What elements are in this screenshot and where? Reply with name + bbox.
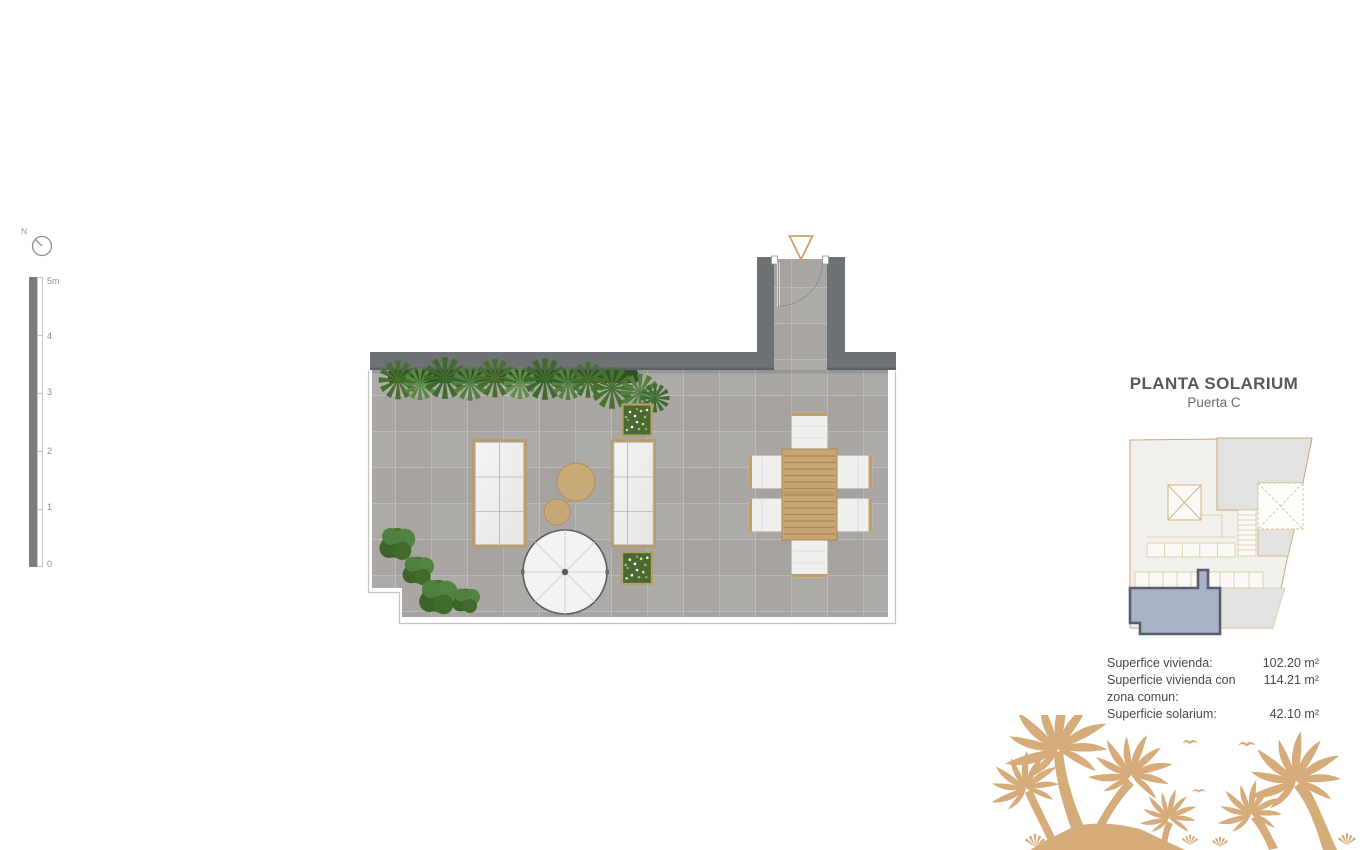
planter-top: [623, 405, 652, 436]
scale-label-2: 2: [47, 446, 52, 456]
scale-bar-rule: [29, 277, 37, 567]
sofa-center: [611, 439, 656, 548]
sofa-left: [472, 439, 527, 548]
compass-north-label: N: [21, 226, 27, 236]
page-title: PLANTA SOLARIUM: [1100, 374, 1328, 394]
compass: N: [18, 222, 58, 262]
area-label: Superficie vivienda con zona comun:: [1107, 672, 1253, 706]
scale-label-5m: 5m: [47, 276, 60, 286]
area-value: 114.21 m²: [1253, 672, 1319, 689]
pouf-large: [557, 463, 595, 501]
palm-cluster-right: [1212, 725, 1356, 850]
area-row: Superfice vivienda: 102.20 m²: [1107, 655, 1319, 672]
page-subtitle: Puerta C: [1100, 395, 1328, 410]
scale-label-0: 0: [47, 559, 52, 569]
dining-table: [782, 449, 837, 540]
entry-arrow-icon: [790, 236, 813, 260]
palm-cluster-left: [985, 715, 1198, 850]
scale-label-1: 1: [47, 502, 52, 512]
scale-label-4: 4: [47, 331, 52, 341]
compass-icon: [28, 231, 56, 259]
plan-sheet: N 5m 4 3 2 1 0: [0, 0, 1360, 850]
key-plan: [1125, 430, 1325, 640]
planter-bottom: [622, 552, 652, 584]
scale-bar: 5m 4 3 2 1 0: [29, 277, 89, 567]
palm-decoration: [985, 715, 1360, 850]
area-label: Superfice vivienda:: [1107, 655, 1253, 672]
parasol: [521, 530, 609, 614]
area-table: Superfice vivienda: 102.20 m² Superficie…: [1107, 655, 1319, 723]
scale-bar-strip: [37, 277, 43, 567]
seagulls: [1182, 740, 1256, 793]
floor-plan: [360, 225, 905, 645]
area-value: 102.20 m²: [1253, 655, 1319, 672]
scale-label-3: 3: [47, 387, 52, 397]
area-row: Superficie vivienda con zona comun: 114.…: [1107, 672, 1319, 706]
pouf-small: [544, 499, 570, 525]
